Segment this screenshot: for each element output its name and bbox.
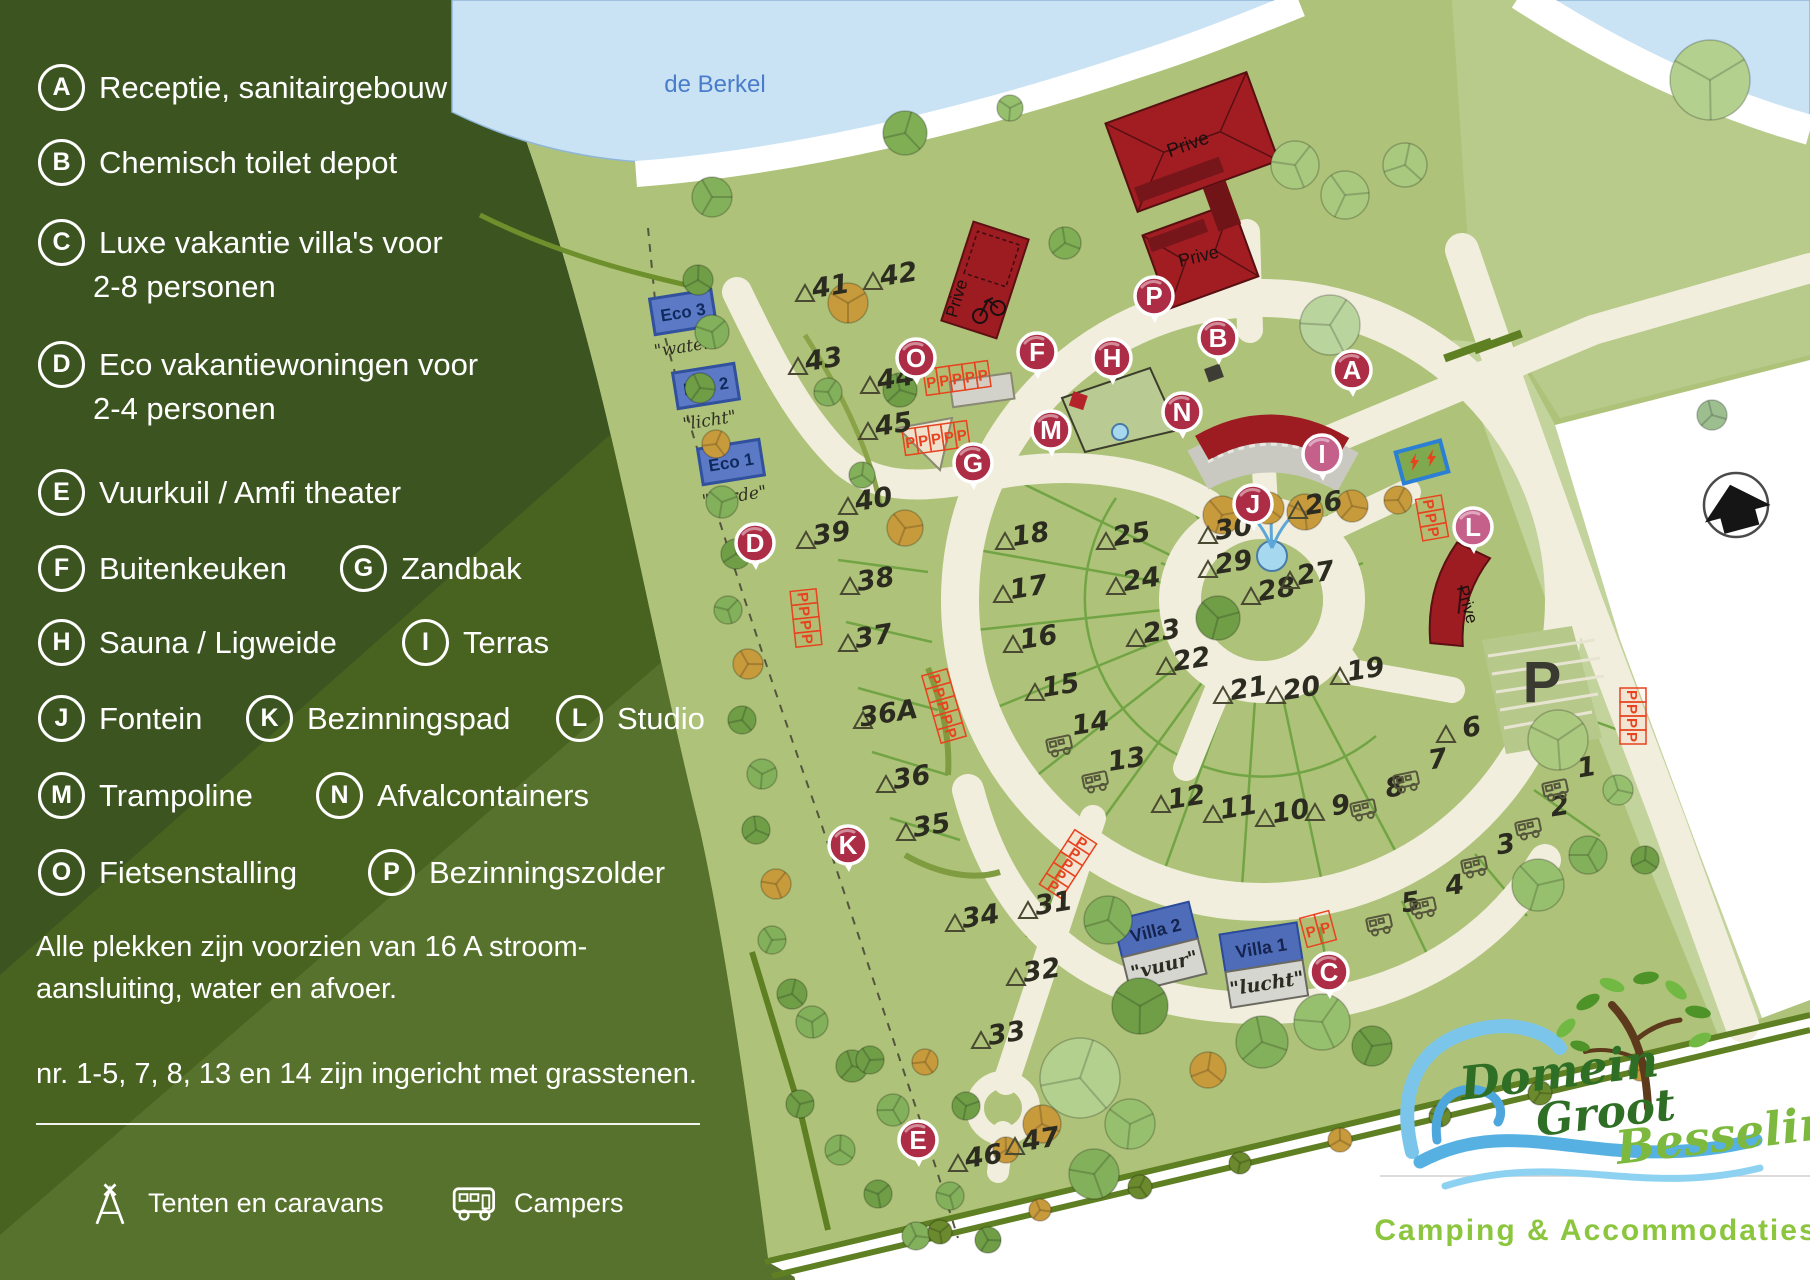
legend-item-C: CLuxe vakantie villa's voor <box>38 219 443 266</box>
pitch-number: 32 <box>1021 952 1063 988</box>
legend-item-B: BChemisch toilet depot <box>38 139 397 186</box>
marker-letter: N <box>1173 397 1192 427</box>
legend-note-power-2: aansluiting, water en afvoer. <box>36 973 397 1006</box>
pitch-number: 37 <box>853 618 895 655</box>
pitch-number: 24 <box>1121 561 1163 597</box>
tree-icon <box>1029 1199 1051 1221</box>
tree-icon <box>1105 1099 1155 1149</box>
legend-item-label: Receptie, sanitairgebouw <box>99 70 447 106</box>
legend-letter-badge: B <box>38 139 85 186</box>
tree-icon <box>1384 486 1412 514</box>
legend-item-M: MTrampoline <box>38 772 253 819</box>
marker-letter: H <box>1103 343 1122 373</box>
pitch-number: 10 <box>1270 793 1312 829</box>
legend-item-label: Vuurkuil / Amfi theater <box>99 475 401 511</box>
parking-letter: P <box>1623 718 1640 728</box>
parking-letter: P <box>1623 732 1640 742</box>
pitch-number: 26 <box>1303 485 1345 521</box>
tree-icon <box>887 510 923 546</box>
tree-icon <box>912 1049 938 1075</box>
tree-icon <box>1040 1038 1120 1118</box>
legend-note-pitches: nr. 1-5, 7, 8, 13 en 14 zijn ingericht m… <box>36 1058 697 1091</box>
legend-letter-badge: O <box>38 849 85 896</box>
legend-item-H: HSauna / Ligweide <box>38 619 337 666</box>
legend-note-power-1: Alle plekken zijn voorzien van 16 A stro… <box>36 931 587 964</box>
camper-icon <box>452 1184 498 1222</box>
pitch-number: 14 <box>1070 705 1112 741</box>
pitch-number: 46 <box>962 1138 1005 1175</box>
tree-icon <box>1271 141 1319 189</box>
marker-letter: O <box>906 343 926 373</box>
pitch-number: 45 <box>872 406 915 443</box>
pitch-number: 13 <box>1106 741 1148 777</box>
legend-letter-badge: F <box>38 545 85 592</box>
pitch-number: 34 <box>960 898 1002 934</box>
tree-icon <box>877 1094 909 1126</box>
parking-letter: P <box>1623 690 1640 700</box>
tree-icon <box>1196 596 1240 640</box>
legend-item-A: AReceptie, sanitairgebouw <box>38 64 447 111</box>
tree-icon <box>1512 859 1564 911</box>
legend-letter-badge: J <box>38 695 85 742</box>
legend-letter-badge: K <box>246 695 293 742</box>
legend-item-label: Studio <box>617 701 705 737</box>
pitch-number: 22 <box>1171 641 1213 677</box>
pitch-number: 15 <box>1040 667 1082 703</box>
tree-icon <box>1569 836 1607 874</box>
tree-icon <box>1352 1026 1392 1066</box>
trampoline <box>1112 424 1128 440</box>
tree-icon <box>1190 1052 1226 1088</box>
pitch-number: 25 <box>1111 516 1153 552</box>
legend-item-N: NAfvalcontainers <box>316 772 589 819</box>
legend-item-label: Fietsenstalling <box>99 855 297 891</box>
pitch-number: 18 <box>1010 516 1052 552</box>
tree-icon <box>1383 143 1427 187</box>
legend-item-label: Eco vakantiewoningen voor <box>99 347 478 383</box>
marker-letter: C <box>1320 957 1339 987</box>
pitch-number: 38 <box>855 561 897 597</box>
legend-item-label: Bezinningspad <box>307 701 510 737</box>
tree-icon <box>864 1180 892 1208</box>
legend-letter-badge: H <box>38 619 85 666</box>
legend: AReceptie, sanitairgebouwBChemisch toile… <box>0 0 820 1280</box>
legend-key-tents: Tenten en caravans <box>88 1180 384 1226</box>
pitch-number: 28 <box>1256 571 1298 607</box>
pitch-number: 36 <box>891 759 933 795</box>
tree-icon <box>1603 775 1633 805</box>
tree-icon <box>1128 1175 1152 1199</box>
legend-item-J: JFontein <box>38 695 202 742</box>
pitch-number: 12 <box>1166 779 1208 815</box>
tree-icon <box>1670 40 1750 120</box>
marker-letter: P <box>1145 281 1162 311</box>
pitch-number: 29 <box>1213 544 1255 580</box>
pitch-number: 16 <box>1018 619 1060 655</box>
legend-item-L: LStudio <box>556 695 705 742</box>
legend-key-campers-label: Campers <box>514 1188 624 1219</box>
legend-item-label: Luxe vakantie villa's voor <box>99 225 443 261</box>
marker-letter: I <box>1318 439 1325 469</box>
villa: Villa 1"lucht" <box>1220 922 1309 1007</box>
tree-icon <box>936 1182 964 1210</box>
map-label: P <box>1523 650 1562 715</box>
tree-icon <box>997 95 1023 121</box>
legend-item-label: Buitenkeuken <box>99 551 287 587</box>
legend-item-label: Terras <box>463 625 549 661</box>
legend-item-G: GZandbak <box>340 545 522 592</box>
pitch-number: 47 <box>1019 1121 1062 1158</box>
legend-letter-badge: A <box>38 64 85 111</box>
pitch-number: 17 <box>1008 569 1050 606</box>
pitch-number: 23 <box>1141 613 1183 649</box>
marker-letter: L <box>1465 512 1481 542</box>
legend-item-label: Bezinningszolder <box>429 855 665 891</box>
tree-icon <box>928 1220 952 1244</box>
tree-icon <box>1084 896 1132 944</box>
parking-spaces: PPPP <box>1620 688 1646 744</box>
marker-letter: G <box>963 448 983 478</box>
tree-icon <box>1697 400 1727 430</box>
tree-icon <box>1069 1149 1119 1199</box>
tree-icon <box>1236 1016 1288 1068</box>
pitch-number: 19 <box>1345 651 1387 687</box>
legend-item-continuation: 2-4 personen <box>93 391 276 427</box>
legend-item-O: OFietsenstalling <box>38 849 297 896</box>
legend-item-I: ITerras <box>402 619 549 666</box>
tree-icon <box>1229 1152 1251 1174</box>
legend-letter-badge: C <box>38 219 85 266</box>
legend-item-label: Sauna / Ligweide <box>99 625 337 661</box>
pitch-number: 27 <box>1295 555 1337 592</box>
parking-letter: P <box>1623 704 1640 714</box>
marker-letter: E <box>909 1125 926 1155</box>
legend-letter-badge: L <box>556 695 603 742</box>
pitch-number: 42 <box>877 256 920 293</box>
tree-icon <box>1049 227 1081 259</box>
pitch-number: 33 <box>986 1015 1028 1051</box>
legend-letter-badge: N <box>316 772 363 819</box>
marker-letter: J <box>1246 489 1260 519</box>
legend-letter-badge: E <box>38 469 85 516</box>
legend-letter-badge: M <box>38 772 85 819</box>
legend-letter-badge: G <box>340 545 387 592</box>
legend-item-label: Afvalcontainers <box>377 778 589 814</box>
pitch-number: 40 <box>852 481 895 518</box>
legend-key-campers: Campers <box>452 1184 624 1222</box>
tree-icon <box>1300 295 1360 355</box>
legend-item-continuation: 2-8 personen <box>93 269 276 305</box>
legend-item-F: FBuitenkeuken <box>38 545 287 592</box>
tree-icon <box>1328 1128 1352 1152</box>
marker-letter: A <box>1343 355 1362 385</box>
tent-icon <box>88 1180 132 1226</box>
legend-item-label: Trampoline <box>99 778 253 814</box>
marker-letter: B <box>1209 323 1228 353</box>
legend-key-tents-label: Tenten en caravans <box>148 1188 384 1219</box>
legend-item-K: KBezinningspad <box>246 695 510 742</box>
logo-tagline: Camping & Accommodaties <box>1374 1214 1810 1247</box>
legend-divider <box>36 1123 700 1125</box>
tree-icon <box>1294 994 1350 1050</box>
campsite-map-page: Eco 3"water"Eco 2"licht"Eco 1"aarde" Vil… <box>0 0 1810 1280</box>
pitch-number: 35 <box>911 807 953 843</box>
pitch-number: 11 <box>1218 789 1260 825</box>
pitch-number: 21 <box>1228 670 1270 706</box>
tree-icon <box>1112 978 1168 1034</box>
marker-letter: K <box>839 830 858 860</box>
legend-item-label: Chemisch toilet depot <box>99 145 397 181</box>
pitch-number: 20 <box>1281 670 1323 706</box>
tree-icon <box>902 1222 930 1250</box>
legend-letter-badge: I <box>402 619 449 666</box>
tree-icon <box>883 111 927 155</box>
legend-letter-badge: P <box>368 849 415 896</box>
tree-icon <box>975 1227 1001 1253</box>
tree-icon <box>856 1046 884 1074</box>
tree-icon <box>1321 171 1369 219</box>
legend-letter-badge: D <box>38 341 85 388</box>
tree-icon <box>825 1135 855 1165</box>
marker-letter: M <box>1040 415 1062 445</box>
pitch-number: 31 <box>1033 885 1075 921</box>
legend-item-label: Zandbak <box>401 551 522 587</box>
legend-item-D: DEco vakantiewoningen voor <box>38 341 478 388</box>
legend-item-label: Fontein <box>99 701 202 737</box>
tree-icon <box>1631 846 1659 874</box>
tree-icon <box>952 1092 980 1120</box>
legend-item-P: PBezinningszolder <box>368 849 665 896</box>
marker-letter: F <box>1029 337 1045 367</box>
legend-item-E: EVuurkuil / Amfi theater <box>38 469 401 516</box>
